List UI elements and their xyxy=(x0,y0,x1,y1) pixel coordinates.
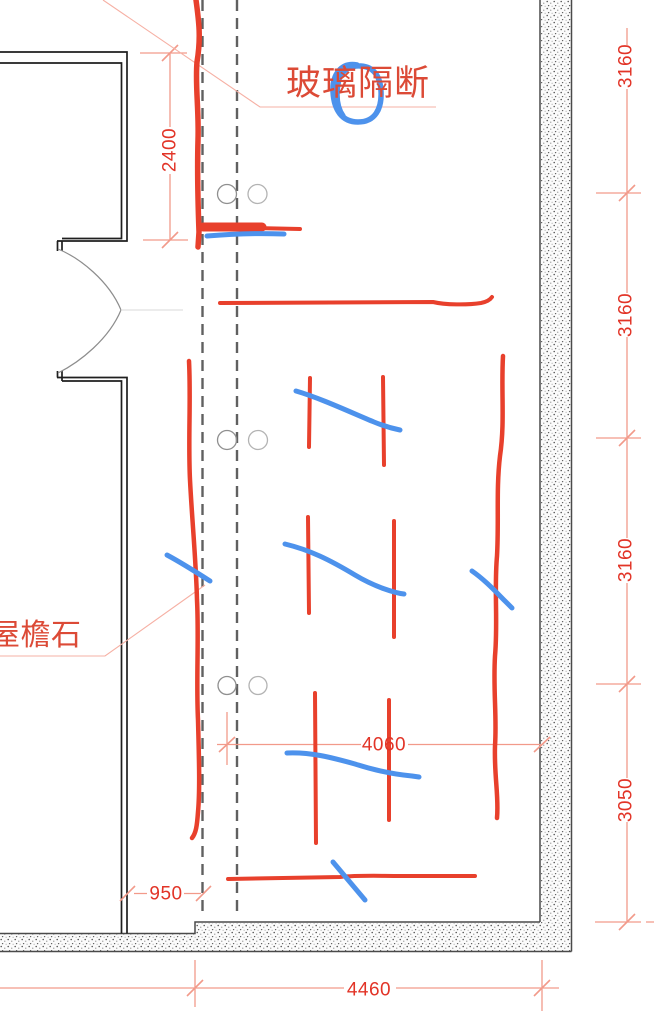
glass-partition-label: 玻璃隔断 xyxy=(286,66,430,101)
drawing-linework xyxy=(0,0,654,1024)
floor-plan-canvas: 玻璃隔断 屋檐石 2400 3160 3160 3160 3050 4060 9… xyxy=(0,0,654,1024)
fixing-circles xyxy=(218,185,268,695)
dimension-2400: 2400 xyxy=(161,128,180,172)
dimension-4060: 4060 xyxy=(362,736,406,755)
dimension-3160-middle: 3160 xyxy=(617,293,636,337)
dimension-3160-lower: 3160 xyxy=(617,538,636,582)
eave-stone-label: 屋檐石 xyxy=(0,621,82,651)
dimension-4460: 4460 xyxy=(347,981,391,1000)
dimension-950: 950 xyxy=(149,885,182,904)
dimension-3050: 3050 xyxy=(617,778,636,822)
masonry-walls xyxy=(0,0,572,952)
left-walls xyxy=(0,52,127,934)
door-swing xyxy=(58,249,183,373)
dimension-3160-top: 3160 xyxy=(617,44,636,88)
axis-dashed-lines xyxy=(203,0,238,918)
